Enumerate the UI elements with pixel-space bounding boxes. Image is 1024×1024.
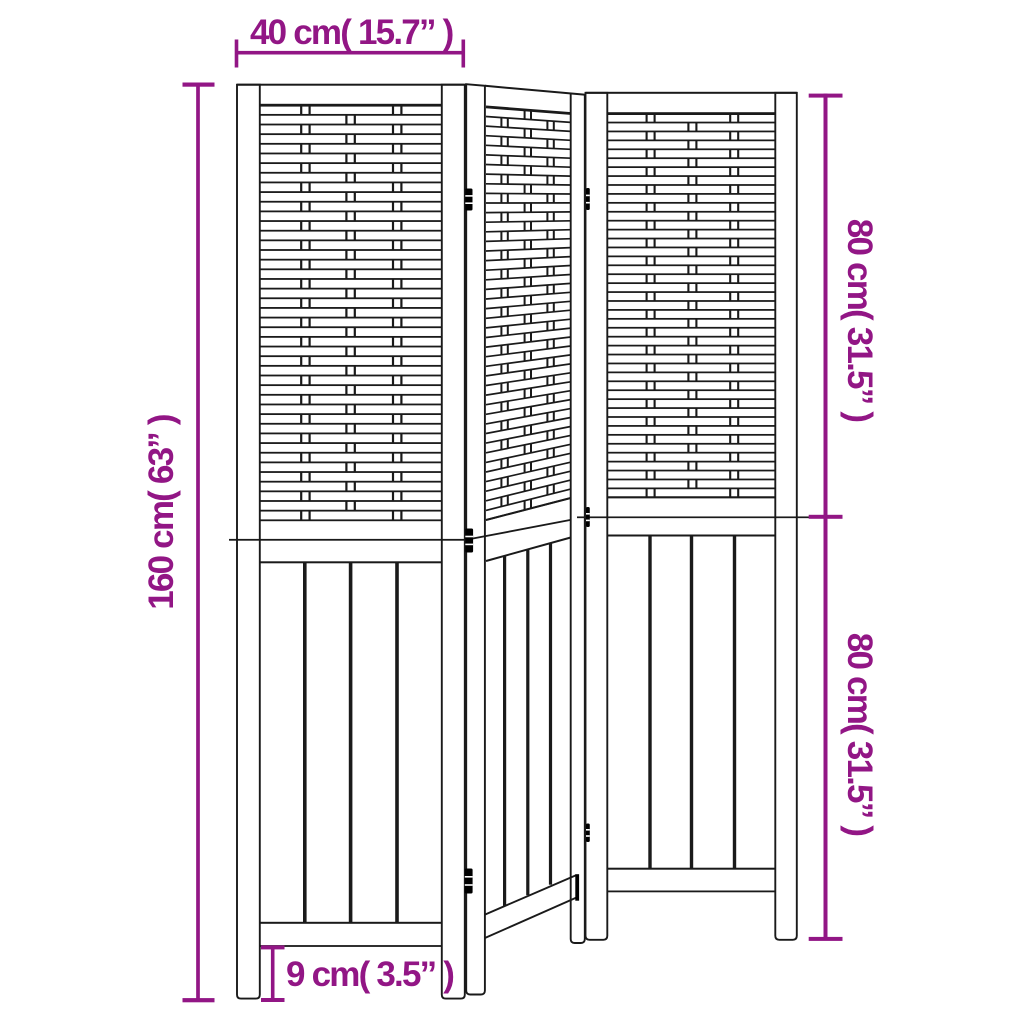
svg-text:80 cm( 31.5” ): 80 cm( 31.5” ) [840,219,879,422]
svg-text:9 cm( 3.5” ): 9 cm( 3.5” ) [286,955,453,994]
svg-text:40 cm( 15.7” ): 40 cm( 15.7” ) [250,13,453,52]
svg-text:80 cm( 31.5” ): 80 cm( 31.5” ) [840,633,879,836]
svg-text:160 cm( 63” ): 160 cm( 63” ) [142,415,181,610]
